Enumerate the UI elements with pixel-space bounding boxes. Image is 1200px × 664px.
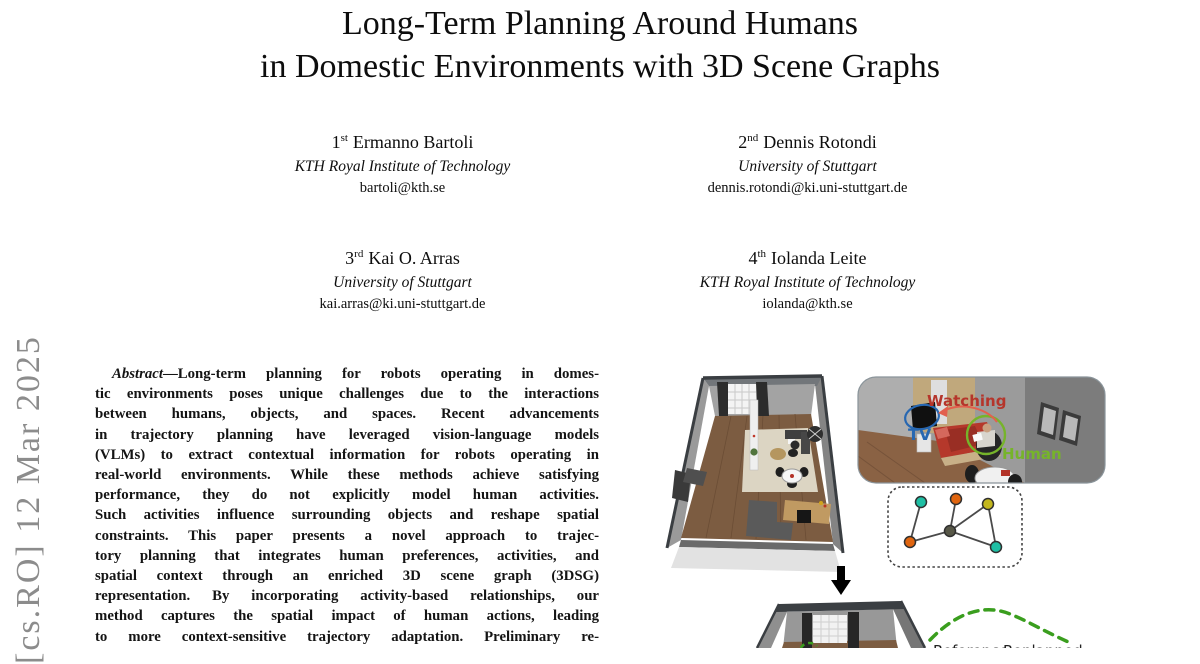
reference-path-label: Reference xyxy=(933,642,1009,648)
paper-title-line1: Long-Term Planning Around Humans xyxy=(0,2,1200,45)
author-2-ordinal-suffix: nd xyxy=(747,132,758,144)
activity-closeup-inset: Watching TV Human xyxy=(858,377,1105,490)
graph-node-teal-2 xyxy=(991,542,1002,553)
kitchen-counter xyxy=(783,500,831,524)
paper-title-line2: in Domestic Environments with 3D Scene G… xyxy=(0,45,1200,88)
author-3: 3rdKai O. Arras University of Stuttgart … xyxy=(200,242,605,314)
room-overview-render xyxy=(667,376,843,572)
abstract-label: Abstract xyxy=(112,366,163,382)
abstract-line: tic environments poses unique challenges… xyxy=(95,384,599,404)
author-2: 2ndDennis Rotondi University of Stuttgar… xyxy=(605,126,1010,198)
abstract-line: representation. By incorporating activit… xyxy=(95,586,599,606)
paper-page: { "arxiv_stamp": { "text": "[cs.RO] 12 M… xyxy=(0,0,1200,648)
abstract-first-line: Abstract—Long-term planning for robots o… xyxy=(95,364,599,384)
author-2-ordinal: 2 xyxy=(738,132,747,152)
author-3-ordinal: 3 xyxy=(345,248,354,268)
round-rug xyxy=(770,448,786,460)
abstract-line: method captures the spatial impact of hu… xyxy=(95,606,599,626)
author-1-ordinal: 1 xyxy=(332,132,341,152)
replanned-path-label: Replanned xyxy=(1003,642,1083,648)
author-2-name: 2ndDennis Rotondi xyxy=(605,126,1010,154)
author-1-email: bartoli@kth.se xyxy=(200,179,605,199)
author-1-ordinal-suffix: st xyxy=(341,132,348,144)
graph-node-orange-2 xyxy=(905,537,916,548)
graph-node-orange-1 xyxy=(951,494,962,505)
plant xyxy=(750,448,757,455)
trajectory-path: Reference Replanned xyxy=(930,610,1083,648)
graph-node-yellow xyxy=(983,499,994,510)
author-4-affiliation: KTH Royal Institute of Technology xyxy=(605,273,1010,293)
abstract-line: constraints. This paper presents a novel… xyxy=(95,526,599,546)
author-4: 4thIolanda Leite KTH Royal Institute of … xyxy=(605,242,1010,314)
abstract-line: performance, they do not explicitly mode… xyxy=(95,485,599,505)
abstract-line: tory planning that integrates human pref… xyxy=(95,546,599,566)
pinwheel-art xyxy=(807,426,823,442)
abstract-line: Such activities influence surrounding ob… xyxy=(95,505,599,525)
watching-label: Watching xyxy=(927,392,1006,410)
abstract-line: spatial context through an enriched 3D s… xyxy=(95,566,599,586)
replanned-path-curve xyxy=(930,610,1073,644)
abstract-line: between humans, objects, and spaces. Rec… xyxy=(95,404,599,424)
abstract-line: to more context-sensitive trajectory ada… xyxy=(95,627,599,647)
window-blinds xyxy=(717,382,769,416)
tv-label: TV xyxy=(908,425,932,444)
author-3-email: kai.arras@ki.uni-stuttgart.de xyxy=(200,295,605,315)
abstract-line: in trajectory planning have leveraged vi… xyxy=(95,425,599,445)
arxiv-stamp: [cs.RO] 12 Mar 2025 xyxy=(10,335,48,664)
teaser-figure: Watching TV Human xyxy=(645,372,1200,648)
paper-title: Long-Term Planning Around Humans in Dome… xyxy=(0,2,1200,88)
author-2-affiliation: University of Stuttgart xyxy=(605,157,1010,177)
human-label: Human xyxy=(1002,445,1062,463)
author-3-name: 3rdKai O. Arras xyxy=(200,242,605,270)
abstract-line: (VLMs) to extract contextual information… xyxy=(95,445,599,465)
adapted-scene-render xyxy=(757,601,925,648)
scene-graph-panel xyxy=(888,487,1022,567)
author-1-name: 1stErmanno Bartoli xyxy=(200,126,605,154)
author-3-ordinal-suffix: rd xyxy=(354,248,363,260)
author-4-ordinal-suffix: th xyxy=(757,248,766,260)
author-2-email: dennis.rotondi@ki.uni-stuttgart.de xyxy=(605,179,1010,199)
author-1: 1stErmanno Bartoli KTH Royal Institute o… xyxy=(200,126,605,198)
author-3-affiliation: University of Stuttgart xyxy=(200,273,605,293)
abstract-section: Abstract—Long-term planning for robots o… xyxy=(95,364,599,648)
author-block: 1stErmanno Bartoli KTH Royal Institute o… xyxy=(200,126,1010,314)
graph-node-center xyxy=(945,526,956,537)
abstract-line: real-world environments. While these met… xyxy=(95,465,599,485)
author-4-email: iolanda@kth.se xyxy=(605,295,1010,315)
abstract-lines: tic environments poses unique challenges… xyxy=(95,384,599,648)
graph-node-teal-1 xyxy=(916,497,927,508)
author-4-name: 4thIolanda Leite xyxy=(605,242,1010,270)
desk-and-person xyxy=(785,430,810,457)
author-1-affiliation: KTH Royal Institute of Technology xyxy=(200,157,605,177)
